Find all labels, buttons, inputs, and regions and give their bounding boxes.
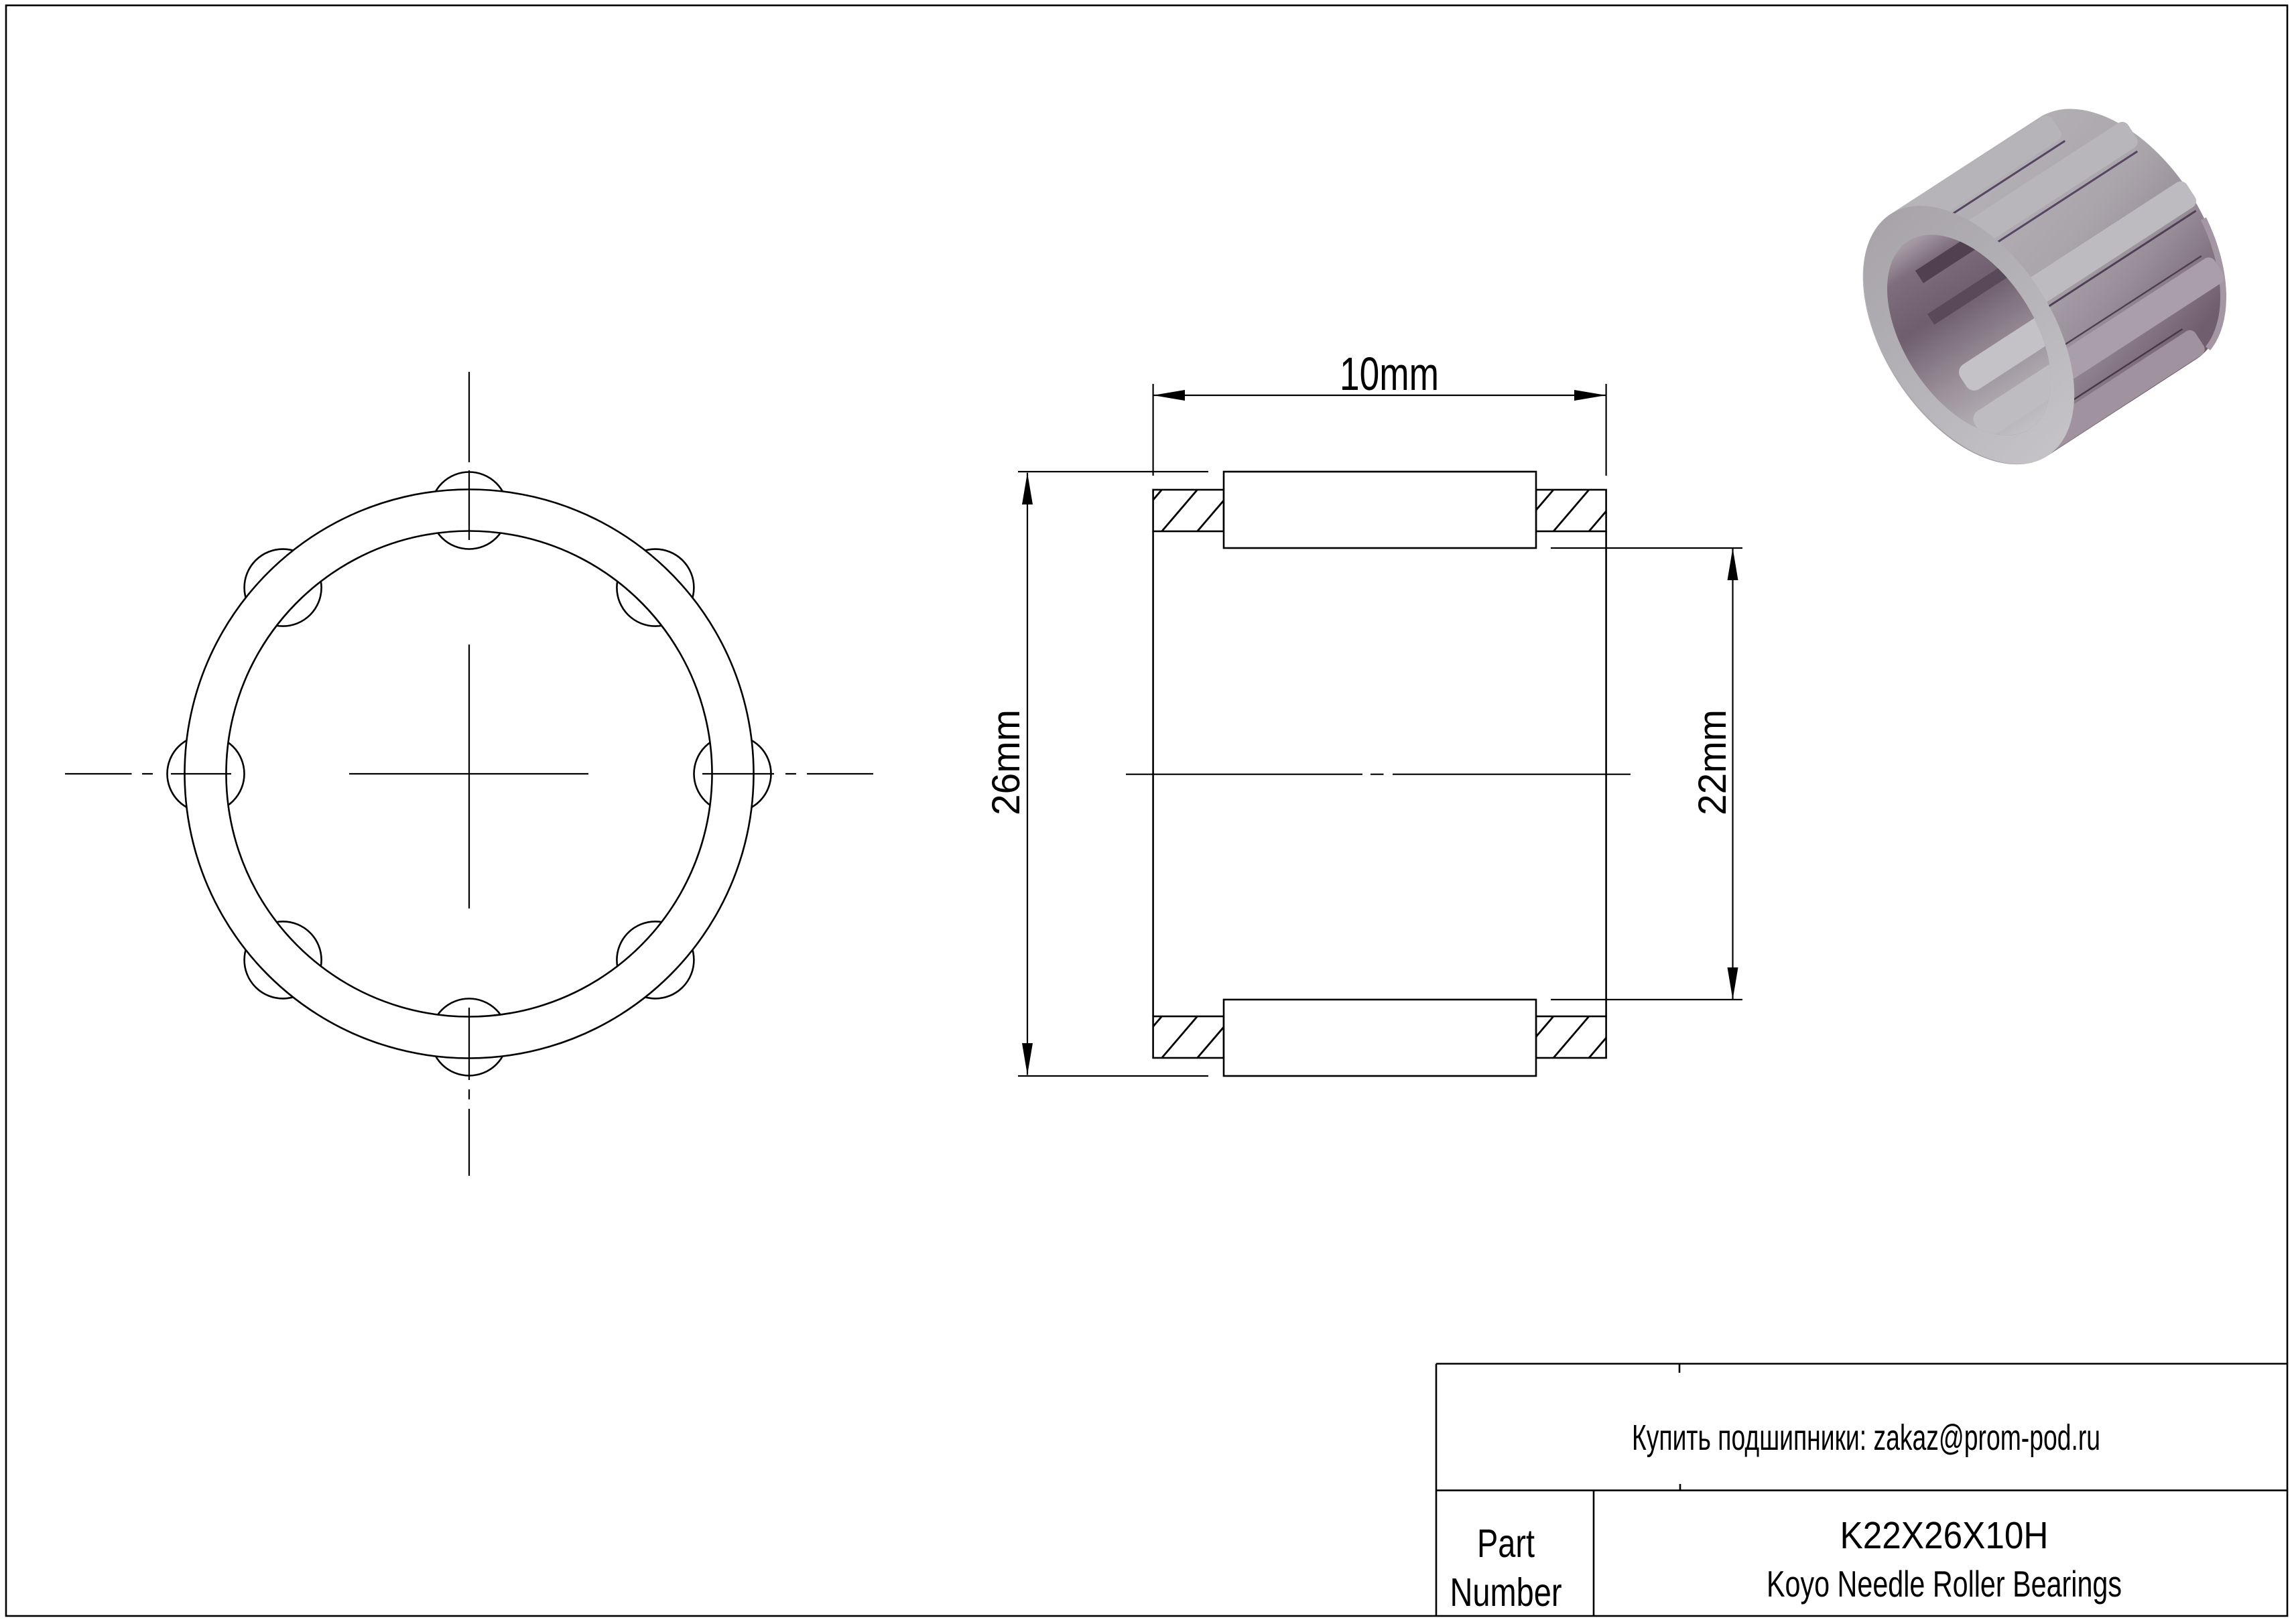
svg-text:22mm: 22mm: [1691, 709, 1734, 815]
svg-text:Number: Number: [1450, 1570, 1562, 1615]
svg-text:Part: Part: [1477, 1521, 1535, 1566]
svg-text:K22X26X10H: K22X26X10H: [1840, 1514, 2049, 1557]
svg-text:10mm: 10mm: [1340, 348, 1439, 400]
svg-text:Koyo Needle Roller Bearings: Koyo Needle Roller Bearings: [1767, 1563, 2122, 1605]
svg-text:26mm: 26mm: [984, 709, 1028, 815]
svg-text:Купить подшипники: zakaz@prom-: Купить подшипники: zakaz@prom-pod.ru: [1632, 1418, 2100, 1458]
